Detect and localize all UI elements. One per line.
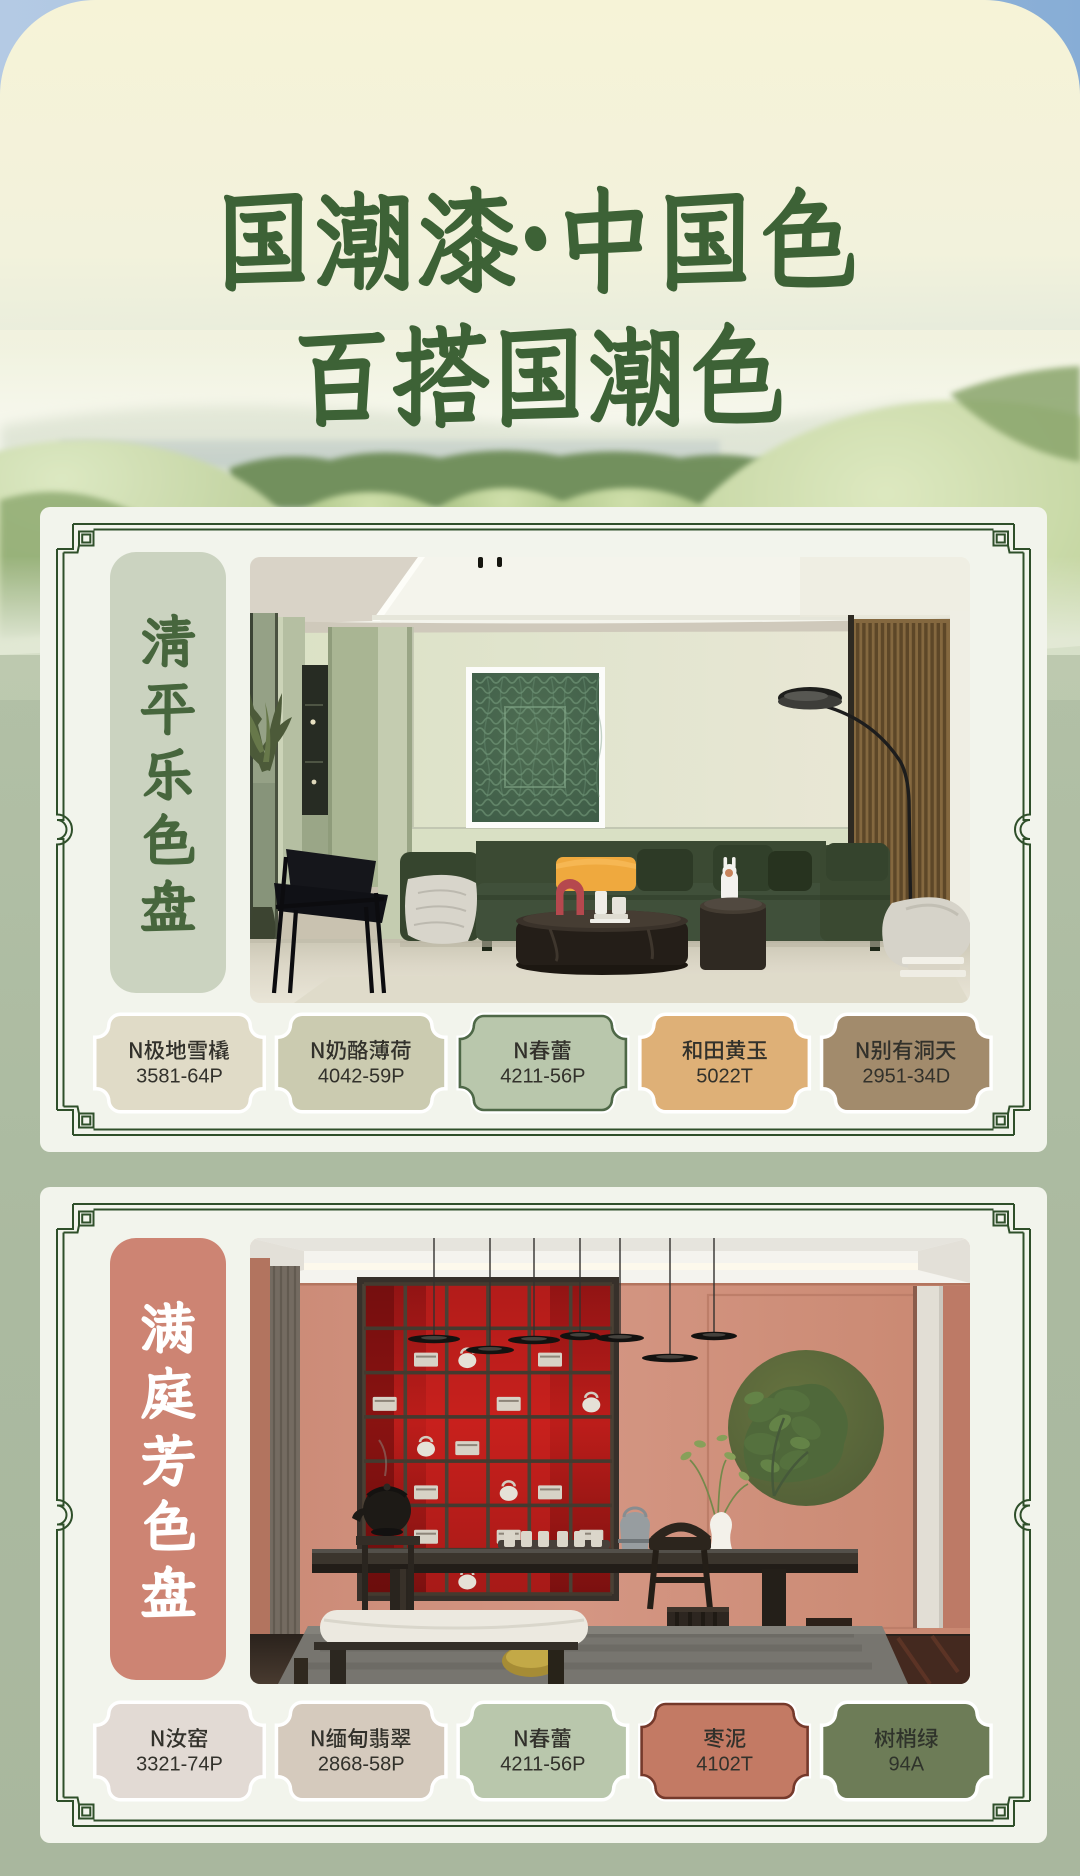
svg-text:4102T: 4102T — [696, 1754, 753, 1776]
svg-text:2951-34D: 2951-34D — [862, 1066, 950, 1088]
svg-text:4211-56P: 4211-56P — [500, 1066, 585, 1088]
svg-text:5022T: 5022T — [696, 1066, 753, 1088]
svg-text:4042-59P: 4042-59P — [318, 1066, 405, 1088]
svg-text:3321-74P: 3321-74P — [136, 1754, 223, 1776]
svg-text:94A: 94A — [889, 1754, 925, 1776]
svg-text:3581-64P: 3581-64P — [136, 1066, 223, 1088]
svg-text:2868-58P: 2868-58P — [318, 1754, 405, 1776]
svg-text:4211-56P: 4211-56P — [500, 1754, 585, 1776]
